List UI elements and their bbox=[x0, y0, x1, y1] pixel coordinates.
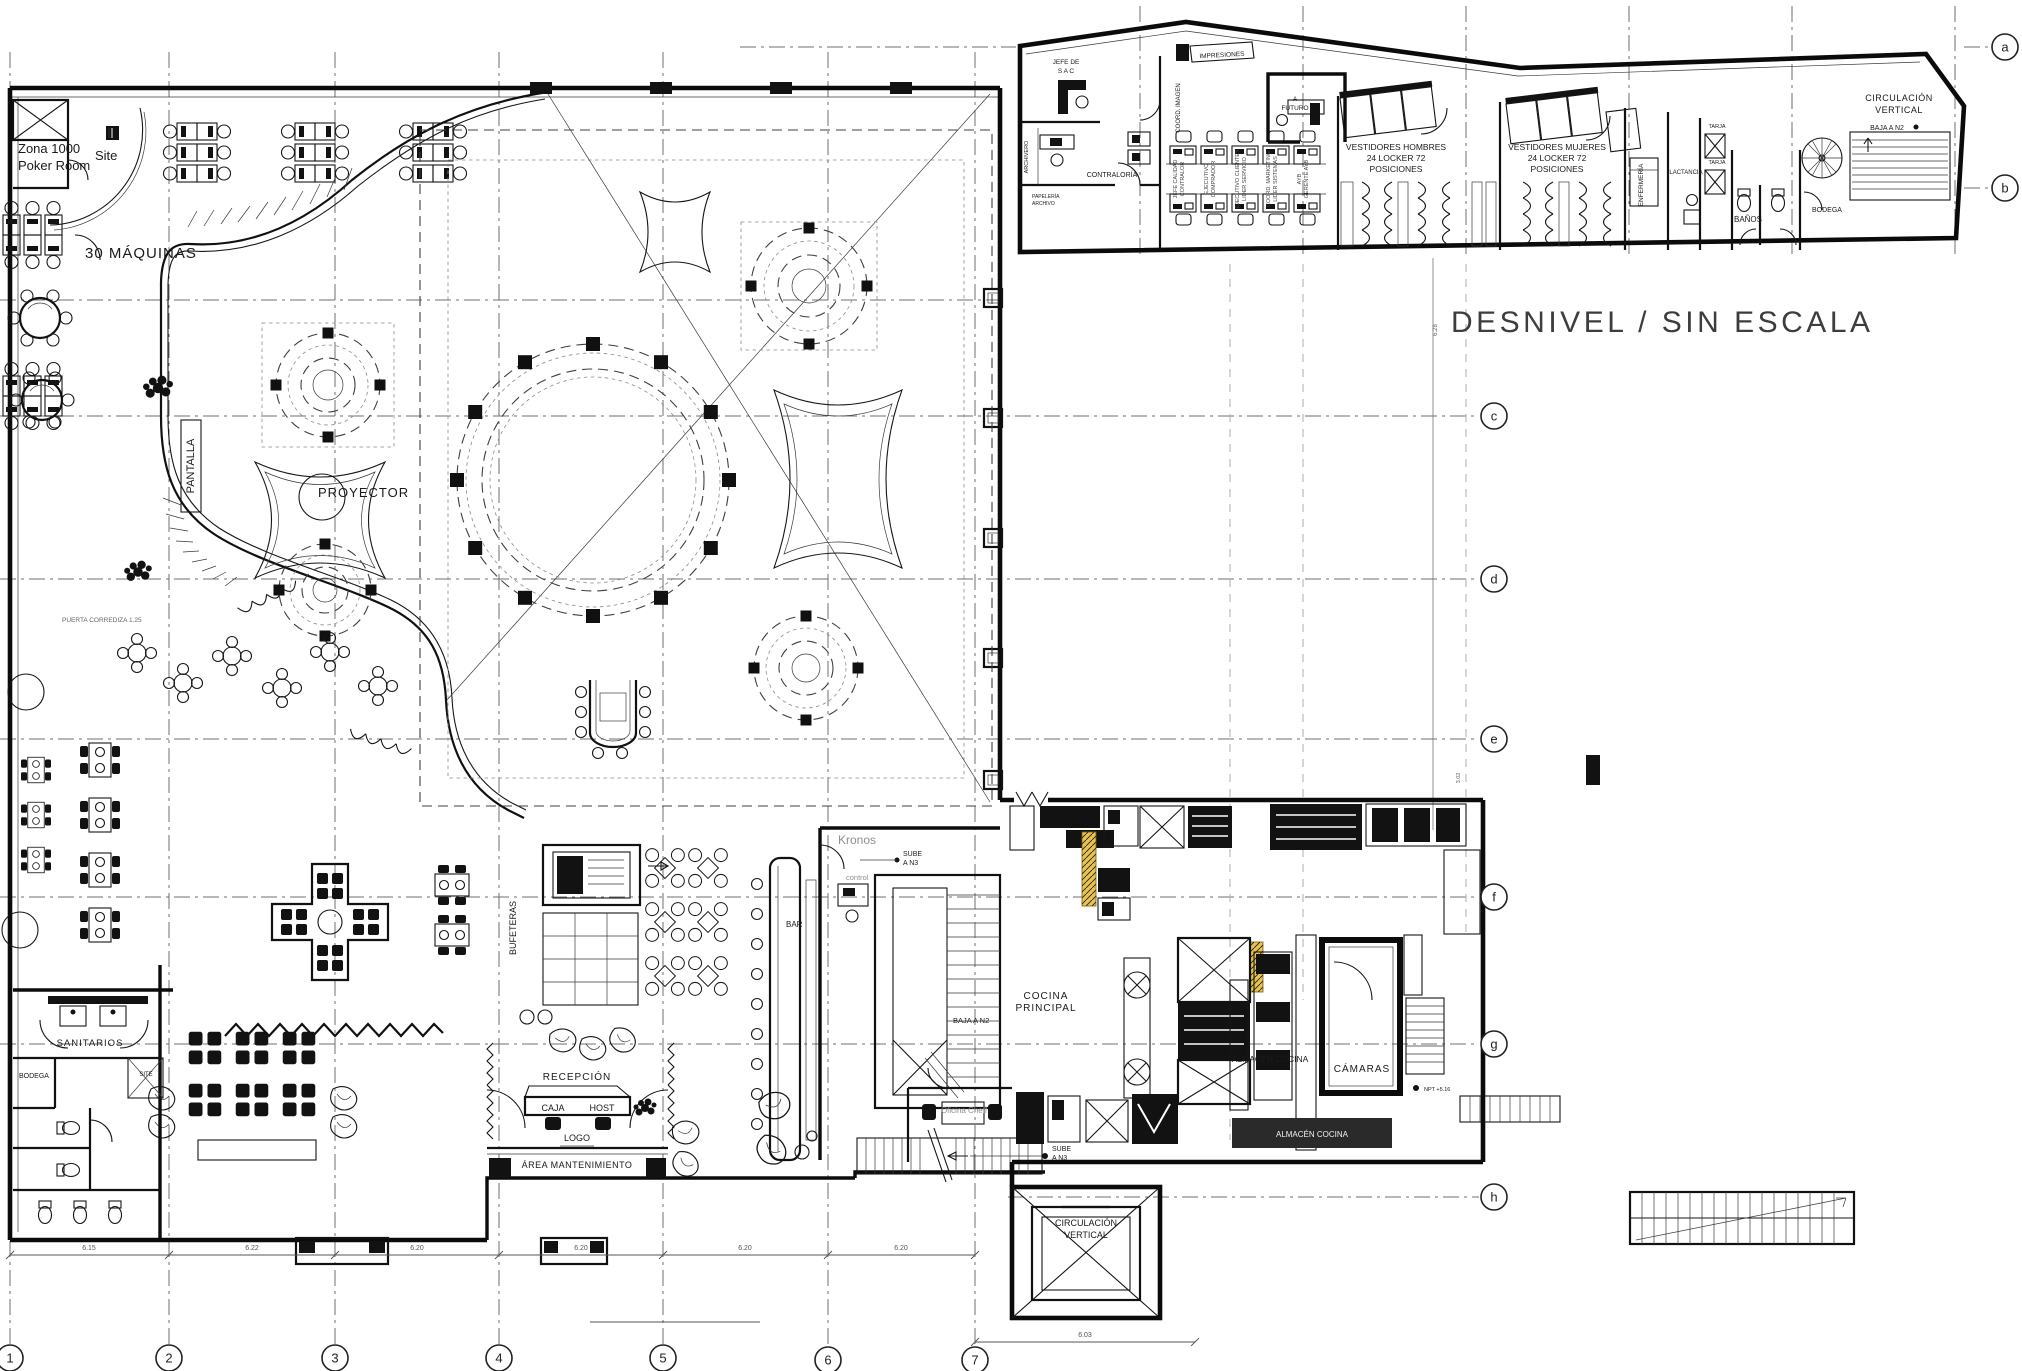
grid-bubble-label-f: f bbox=[1492, 890, 1496, 905]
label-kronos: Kronos bbox=[838, 833, 876, 847]
kitchen bbox=[908, 792, 1560, 1187]
annex-building bbox=[1020, 22, 1964, 252]
grid-bubble-label-2: 2 bbox=[165, 1351, 172, 1366]
label-cocina-principal-1: COCINA bbox=[1024, 991, 1069, 1002]
grid-bubble-label-1: 1 bbox=[6, 1351, 13, 1366]
label-baja-kronos: BAJA A N2 bbox=[953, 1016, 989, 1025]
label-sube-kitchen-2: A N3 bbox=[1052, 1155, 1067, 1162]
label-bufeteras: BUFETERAS bbox=[508, 901, 518, 955]
label-almacen-cocina-2: ALMACÉN COCINA bbox=[1276, 1130, 1349, 1139]
label-oficina-cheff: Oficina Cheff bbox=[941, 1106, 988, 1115]
stage-curved-wall bbox=[161, 92, 548, 818]
sanitarios-block bbox=[13, 965, 173, 1240]
grid-bubble-label-a: a bbox=[2001, 40, 2009, 55]
dimension-lines bbox=[6, 1251, 1199, 1346]
floorplan-drawing: 6.156.226.206.206.206.206.03 Zona 1000Po… bbox=[0, 0, 2022, 1371]
label-area-mantenimiento: ÁREA MANTENIMIENTO bbox=[522, 1160, 633, 1170]
label-vestidores-m-3: POSICIONES bbox=[1531, 164, 1584, 174]
ceiling-medallions bbox=[262, 222, 877, 720]
grid-bubble-2: 2 bbox=[156, 1345, 182, 1371]
label-bodega-strip: BODEGA bbox=[1812, 207, 1842, 214]
dim-right: 6.03 bbox=[1078, 1332, 1092, 1339]
label-contraloria: CONTRALORÍA bbox=[1087, 170, 1138, 179]
grid-bubble-h: h bbox=[1481, 1184, 1507, 1210]
external-stair-right bbox=[1586, 755, 1854, 1244]
label-npt-level: NPT +5.16 bbox=[1424, 1087, 1450, 1093]
label-caja: CAJA bbox=[541, 1103, 564, 1113]
ramp-hatching bbox=[163, 168, 352, 586]
grid-bubble-3: 3 bbox=[322, 1345, 348, 1371]
label-puerta-corrediza: PUERTA CORREDIZA 1.25 bbox=[62, 617, 142, 624]
label-vestidores-m-1: VESTIDORES MUJERES bbox=[1508, 142, 1606, 152]
label-coord-imagen: COORD. IMAGEN bbox=[1176, 83, 1182, 132]
label-a-futuro-1: A bbox=[1293, 96, 1298, 103]
grid-bubble-5: 5 bbox=[650, 1345, 676, 1371]
label-vestidores-m-2: 24 LOCKER 72 bbox=[1528, 153, 1587, 163]
grid-bubble-label-3: 3 bbox=[331, 1351, 338, 1366]
elevator-core bbox=[1012, 1187, 1160, 1318]
reception-area bbox=[487, 1026, 817, 1180]
label-camaras: CÁMARAS bbox=[1334, 1062, 1390, 1075]
label-vestidores-h-2: 24 LOCKER 72 bbox=[1367, 153, 1426, 163]
grid-bubble-label-g: g bbox=[1490, 1037, 1497, 1052]
label-circ-vert-main-2: VERTICAL bbox=[1064, 1230, 1108, 1240]
label-maquinas: 30 MÁQUINAS bbox=[85, 245, 197, 262]
label-enfermeria: ENFERMERÍA bbox=[1636, 163, 1645, 206]
label-almacen-cocina-1: ALMACÉN COCINA bbox=[1232, 1054, 1309, 1064]
grid-bubble-f: f bbox=[1481, 884, 1507, 910]
label-pod-5b: GERENTE AYB bbox=[1304, 159, 1310, 198]
label-site-room: Site bbox=[95, 148, 117, 163]
scale-note-title: DESNIVEL / SIN ESCALA bbox=[1451, 306, 1874, 339]
plus-booth-cluster bbox=[272, 864, 388, 980]
label-banos: BAÑOS bbox=[1734, 215, 1762, 224]
grid-bubble-6: 6 bbox=[815, 1347, 841, 1371]
label-dim-302: 3.02 bbox=[1456, 773, 1462, 784]
grid-bubble-label-d: d bbox=[1490, 572, 1497, 587]
label-papeleria-1: PAPELERÍA bbox=[1032, 193, 1060, 200]
label-archivero: ARCHIVERO bbox=[1024, 140, 1030, 173]
label-pod-5a: AYB bbox=[1297, 173, 1303, 184]
label-pod-3b: LIDER SERVICIO bbox=[1242, 156, 1248, 201]
label-site-closet: SITE bbox=[139, 1072, 152, 1078]
label-pod-2b: COMPRADOR bbox=[1211, 161, 1217, 197]
label-pod-4a: COORD. MARKETING bbox=[1266, 151, 1272, 207]
grid-bubble-b: b bbox=[1992, 175, 2018, 201]
label-tarja-2: TARJA bbox=[1708, 160, 1725, 166]
ceiling-cushion-motifs bbox=[255, 192, 902, 578]
label-vestidores-h-3: POSICIONES bbox=[1370, 164, 1423, 174]
label-pod-3a: EJECUTIVO CLIENTES bbox=[1235, 149, 1241, 209]
label-host: HOST bbox=[589, 1103, 615, 1113]
label-dim-628: 6.28 bbox=[1433, 324, 1439, 336]
label-bodega-sanitarios: BODEGA bbox=[19, 1073, 49, 1080]
dim-bottom-1: 6.22 bbox=[245, 1245, 259, 1252]
label-pod-1b: CONTRALOR bbox=[1180, 162, 1186, 197]
slot-machines bbox=[3, 123, 467, 581]
annex-services bbox=[1630, 112, 1822, 250]
label-sube-kronos-2: A N3 bbox=[903, 860, 918, 867]
chef-office bbox=[908, 1068, 1012, 1162]
grid-bubble-label-e: e bbox=[1490, 732, 1497, 747]
grid-bubble-1: 1 bbox=[0, 1345, 23, 1371]
label-pod-4b: LIDER SISTEMAS bbox=[1273, 156, 1279, 202]
label-circ-vert-strip-1: CIRCULACIÓN bbox=[1865, 93, 1933, 103]
label-recepcion: RECEPCIÓN bbox=[543, 1070, 611, 1083]
label-circ-vert-main-1: CIRCULACIÓN bbox=[1055, 1218, 1117, 1228]
grid-bubble-label-4: 4 bbox=[495, 1351, 502, 1366]
label-pod-2a: EJECUTIVO bbox=[1204, 163, 1210, 195]
dim-bottom-2: 6.20 bbox=[410, 1245, 424, 1252]
poker-room bbox=[13, 100, 146, 260]
grid-bubble-label-6: 6 bbox=[824, 1353, 831, 1368]
construction-grid bbox=[0, 6, 1990, 1344]
dim-bottom-5: 6.20 bbox=[894, 1245, 908, 1252]
label-control: control bbox=[846, 873, 869, 882]
ceiling-column-dots bbox=[271, 223, 873, 726]
dimension-texts: 6.156.226.206.206.206.206.03 bbox=[82, 1245, 1092, 1339]
grid-bubble-d: d bbox=[1481, 566, 1507, 592]
label-circ-vert-strip-2: VERTICAL bbox=[1875, 105, 1923, 115]
label-logo: LOGO bbox=[564, 1133, 590, 1143]
label-vestidores-h-1: VESTIDORES HOMBRES bbox=[1346, 142, 1446, 152]
label-a-futuro-2: FUTURO bbox=[1281, 105, 1308, 112]
label-lactancia: LACTANCIA bbox=[1669, 170, 1702, 176]
bottom-stairs bbox=[296, 1128, 1048, 1264]
grid-bubble-g: g bbox=[1481, 1031, 1507, 1057]
extractor-fans bbox=[1124, 972, 1150, 1085]
label-jefe-sac-1: JEFE DE bbox=[1053, 59, 1080, 66]
grid-bubble-4: 4 bbox=[486, 1345, 512, 1371]
bar-area bbox=[576, 680, 817, 1160]
label-pod-1a: JEFE CALIDAD bbox=[1173, 160, 1179, 199]
ceiling-plan bbox=[255, 94, 992, 806]
label-zona-poker-line1: Zona 1000 bbox=[18, 141, 80, 156]
floorplan-canvas: 6.156.226.206.206.206.206.03 Zona 1000Po… bbox=[0, 0, 2022, 1371]
grid-bubble-label-b: b bbox=[2001, 181, 2008, 196]
label-zona-poker-line2: Poker Room bbox=[18, 158, 90, 173]
label-proyector: PROYECTOR bbox=[318, 485, 409, 500]
grid-bubble-e: e bbox=[1481, 726, 1507, 752]
label-baja-strip: BAJA A N2 bbox=[1870, 125, 1904, 132]
grid-bubble-label-7: 7 bbox=[971, 1353, 978, 1368]
label-sube-kitchen-1: SUBE bbox=[1052, 1146, 1071, 1153]
label-jefe-sac-2: S A C bbox=[1058, 68, 1075, 75]
label-sube-kronos-1: SUBE bbox=[903, 851, 922, 858]
label-papeleria-2: ARCHIVO bbox=[1032, 201, 1055, 207]
label-sanitarios: SANITARIOS bbox=[57, 1038, 124, 1049]
grid-bubble-label-c: c bbox=[1491, 409, 1498, 424]
label-bar-main: BAR bbox=[786, 920, 803, 929]
restaurant-seating bbox=[2, 581, 727, 1160]
grid-bubble-label-h: h bbox=[1490, 1190, 1497, 1205]
dim-bottom-0: 6.15 bbox=[82, 1245, 96, 1252]
grid-bubble-label-5: 5 bbox=[659, 1351, 666, 1366]
dim-bottom-4: 6.20 bbox=[738, 1245, 752, 1252]
label-tarja-1: TARJA bbox=[1708, 124, 1725, 130]
annex-circulation bbox=[1802, 125, 1950, 201]
grid-bubble-a: a bbox=[1992, 34, 2018, 60]
grid-bubble-7: 7 bbox=[962, 1347, 988, 1371]
grid-bubble-c: c bbox=[1481, 403, 1507, 429]
label-cocina-principal-2: PRINCIPAL bbox=[1015, 1003, 1076, 1014]
dim-bottom-3: 6.20 bbox=[574, 1245, 588, 1252]
label-pantalla: PANTALLA bbox=[185, 438, 197, 493]
